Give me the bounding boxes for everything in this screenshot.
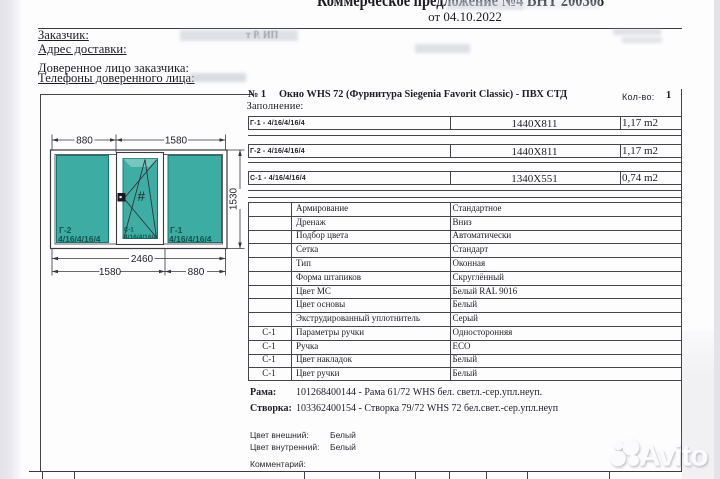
svg-text:4/16/4/16/4: 4/16/4/16/4 bbox=[169, 234, 212, 244]
svg-text:4/16/4/16/4: 4/16/4/16/4 bbox=[124, 235, 158, 241]
svg-text:1530: 1530 bbox=[229, 187, 240, 210]
svg-text:#: # bbox=[138, 189, 146, 204]
svg-text:С-1: С-1 bbox=[124, 228, 134, 234]
svg-text:880: 880 bbox=[76, 136, 93, 147]
svg-text:880: 880 bbox=[188, 267, 205, 278]
svg-text:2460: 2460 bbox=[131, 254, 154, 265]
svg-text:Avito: Avito bbox=[639, 440, 708, 473]
svg-text:4/16/4/16/4: 4/16/4/16/4 bbox=[58, 234, 101, 244]
svg-text:1580: 1580 bbox=[165, 136, 188, 147]
svg-text:1580: 1580 bbox=[99, 267, 122, 278]
